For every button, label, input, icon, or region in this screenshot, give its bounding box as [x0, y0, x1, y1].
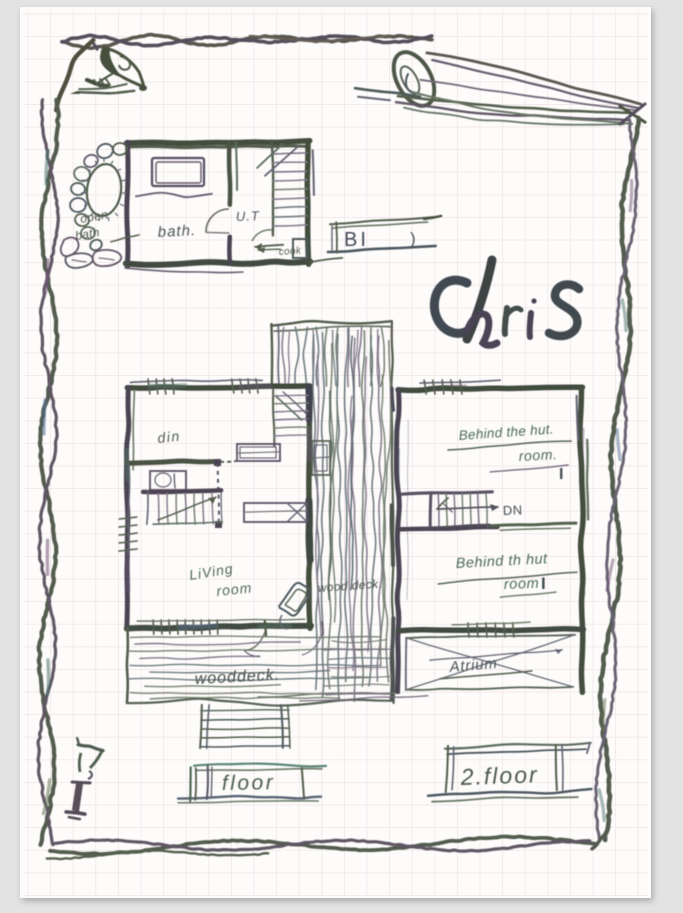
svg-text:floor: floor	[222, 771, 276, 795]
svg-text:Behind th hut: Behind th hut	[455, 551, 548, 572]
svg-text:2.floor: 2.floor	[459, 761, 539, 790]
svg-text:U.T: U.T	[236, 208, 261, 224]
svg-text:LiVing: LiVing	[188, 560, 235, 583]
svg-text:room: room	[504, 576, 540, 593]
svg-text:room: room	[216, 579, 253, 599]
svg-text:room.: room.	[518, 446, 558, 464]
svg-text:bath.: bath.	[157, 222, 196, 241]
svg-text:cook: cook	[278, 245, 302, 258]
svg-text:din: din	[157, 428, 182, 446]
svg-text:Behind the hut.: Behind the hut.	[458, 421, 554, 443]
svg-text:I: I	[541, 574, 546, 593]
svg-text:BI: BI	[344, 229, 369, 251]
svg-text:I: I	[559, 466, 563, 483]
svg-text:): )	[410, 229, 416, 248]
svg-text:DN: DN	[503, 502, 523, 518]
svg-text:Atrium: Atrium	[448, 655, 498, 676]
